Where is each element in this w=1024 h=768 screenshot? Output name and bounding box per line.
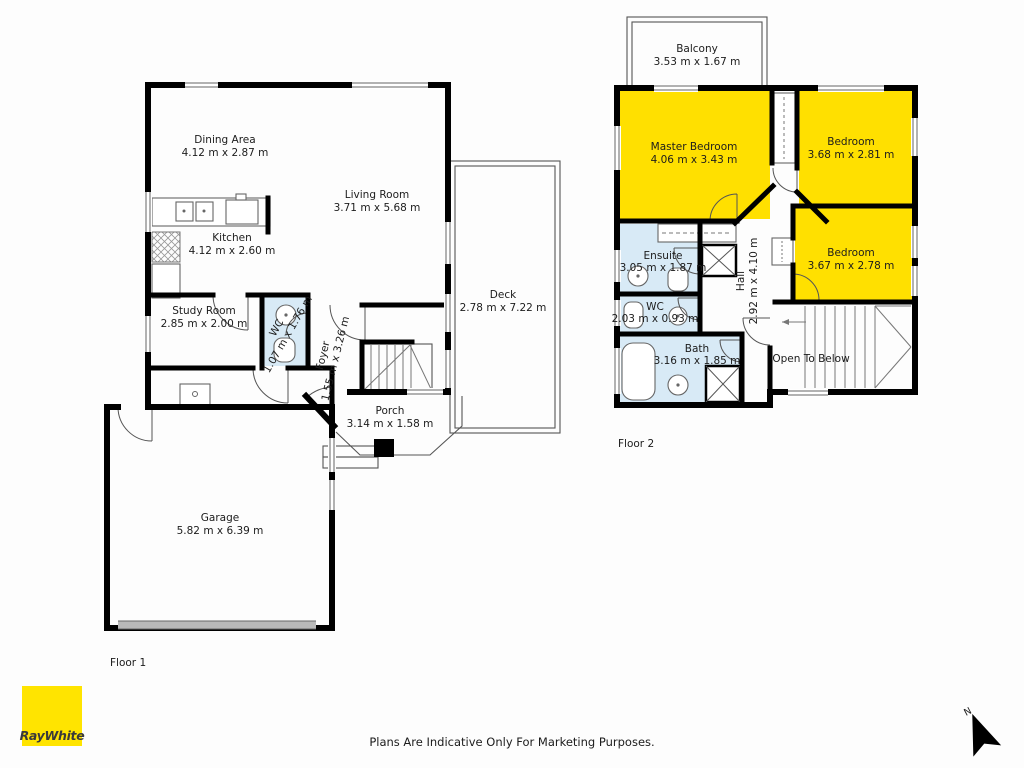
room-label-ensuite: Ensuite [644,250,683,262]
room-label-master: Master Bedroom [651,141,738,153]
room-label-bedroom-right: Bedroom [827,247,875,259]
kitchen-counter [152,194,270,226]
room-label-porch: Porch [376,405,405,417]
room-dims-living: 3.71 m x 5.68 m [334,202,421,214]
open-to-below-label: Open To Below [772,353,850,365]
floor2-stairs [782,306,911,388]
window [407,388,443,396]
garage-door [118,621,316,629]
floor1-labels: Dining Area 4.12 m x 2.87 m Living Room … [161,134,547,537]
floorplan-drawing: Dining Area 4.12 m x 2.87 m Living Room … [0,0,1024,768]
window [911,226,919,258]
window [328,480,336,510]
window [911,118,919,156]
linen-closet [702,245,736,276]
brand-logo-text: RayWhite [20,728,85,743]
window [818,84,884,92]
room-label-study: Study Room [172,305,236,317]
room-label-wc2: WC [646,301,664,313]
room-dims-wc2: 2.03 m x 0.93 m [612,313,699,325]
disclaimer-text: Plans Are Indicative Only For Marketing … [369,735,654,749]
room-dims-garage: 5.82 m x 6.39 m [177,525,264,537]
room-dims-bath: 3.16 m x 1.85 m [654,355,741,367]
room-label-bedroom-top: Bedroom [827,136,875,148]
room-dims-study: 2.85 m x 2.00 m [161,318,248,330]
room-label-balcony: Balcony [676,43,718,55]
pantry-shelves [152,232,180,262]
floor2-plan: Balcony 3.53 m x 1.67 m Master Bedroom 4… [612,17,919,450]
room-dims-dining: 4.12 m x 2.87 m [182,147,269,159]
window [144,192,152,232]
window [444,350,452,388]
window [613,348,621,394]
floor2-label: Floor 2 [618,438,654,450]
window [911,266,919,296]
laundry-sink [180,384,210,405]
room-dims-balcony: 3.53 m x 1.67 m [654,56,741,68]
room-dims-deck: 2.78 m x 7.22 m [460,302,547,314]
window [788,389,828,397]
room-dims-kitchen: 4.12 m x 2.60 m [189,245,276,257]
room-dims-porch: 3.14 m x 1.58 m [347,418,434,430]
room-dims-master: 4.06 m x 3.43 m [651,154,738,166]
room-label-kitchen: Kitchen [212,232,251,244]
window [185,81,218,89]
porch-pillar [374,439,394,457]
window [613,126,621,170]
bedroom-divider-wardrobe [774,93,795,163]
room-dims-bedroom-right: 3.67 m x 2.78 m [808,260,895,272]
room-label-hall: Hall [735,271,747,291]
floorplan-page: Dining Area 4.12 m x 2.87 m Living Room … [0,0,1024,768]
brand-logo: RayWhite [20,686,85,746]
room-label-dining: Dining Area [194,134,255,146]
room-label-living: Living Room [345,189,409,201]
floor1-label: Floor 1 [110,657,146,669]
window [352,81,428,89]
floor1-stairs [363,344,432,390]
room-dims-ensuite: 3.05 m x 1.87 m [620,262,707,274]
window [144,316,152,352]
floor1-plan: Dining Area 4.12 m x 2.87 m Living Room … [107,81,560,669]
north-arrow-icon: N [958,706,1001,757]
room-label-deck: Deck [490,289,517,301]
room-label-garage: Garage [201,512,239,524]
window [444,222,452,264]
window [444,294,452,332]
window [328,438,336,472]
room-dims-hall: 2.92 m x 4.10 m [748,238,760,325]
window [654,84,698,92]
north-label: N [962,706,973,719]
bedroom-right-closet [772,238,793,265]
master-wardrobe [658,224,736,242]
room-dims-bedroom-top: 3.68 m x 2.81 m [808,149,895,161]
room-label-bath: Bath [685,343,709,355]
